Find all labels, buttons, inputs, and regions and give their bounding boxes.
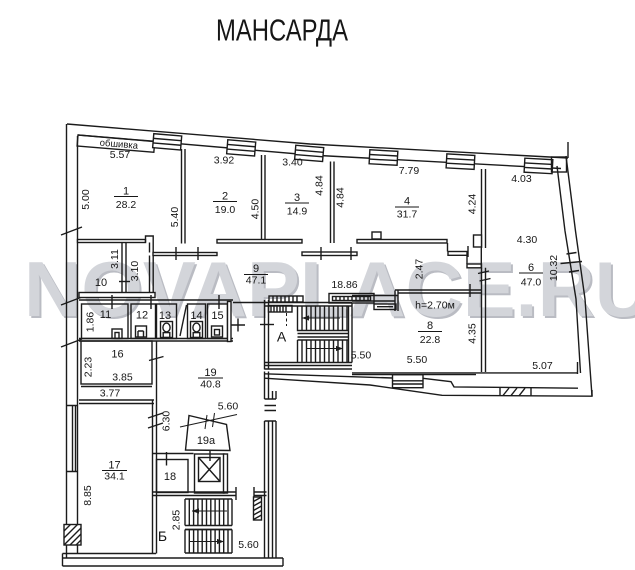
svg-text:6: 6 <box>528 262 534 274</box>
svg-text:14.9: 14.9 <box>287 206 308 218</box>
svg-text:19: 19 <box>204 367 216 379</box>
svg-text:2.23: 2.23 <box>83 357 95 378</box>
svg-text:13: 13 <box>159 310 171 322</box>
svg-text:7.79: 7.79 <box>399 165 420 177</box>
svg-text:9: 9 <box>253 263 259 275</box>
svg-text:МАНСАРДА: МАНСАРДА <box>216 14 349 48</box>
svg-text:8: 8 <box>427 320 433 332</box>
svg-text:19.0: 19.0 <box>215 204 236 216</box>
svg-text:28.2: 28.2 <box>116 199 137 211</box>
svg-text:5.50: 5.50 <box>407 354 428 366</box>
svg-text:4.24: 4.24 <box>467 194 479 215</box>
svg-text:А: А <box>277 329 287 345</box>
svg-text:3: 3 <box>294 192 300 204</box>
svg-text:4.30: 4.30 <box>517 234 538 246</box>
svg-text:22.8: 22.8 <box>420 334 441 346</box>
svg-text:1.86: 1.86 <box>85 312 97 333</box>
svg-text:40.8: 40.8 <box>200 379 221 391</box>
svg-text:6.30: 6.30 <box>161 411 173 432</box>
svg-text:3.92: 3.92 <box>214 155 235 167</box>
svg-text:3.40: 3.40 <box>282 157 303 169</box>
svg-text:Б: Б <box>158 528 167 544</box>
svg-text:34.1: 34.1 <box>104 471 125 483</box>
svg-text:5.50: 5.50 <box>351 350 372 362</box>
svg-text:2: 2 <box>222 191 228 203</box>
svg-text:47.1: 47.1 <box>246 275 267 287</box>
svg-text:15: 15 <box>211 310 223 322</box>
svg-text:4.50: 4.50 <box>250 199 262 220</box>
svg-text:2.47: 2.47 <box>414 259 426 280</box>
svg-text:5.07: 5.07 <box>532 360 553 372</box>
svg-text:10.32: 10.32 <box>548 255 560 281</box>
svg-text:4: 4 <box>404 196 410 208</box>
svg-text:31.7: 31.7 <box>397 209 418 221</box>
svg-text:4.35: 4.35 <box>467 323 479 344</box>
svg-text:4.84: 4.84 <box>335 187 347 208</box>
svg-text:h=2.70м: h=2.70м <box>415 300 455 312</box>
svg-text:14: 14 <box>190 310 202 322</box>
svg-text:4.84: 4.84 <box>314 175 326 196</box>
svg-text:5.00: 5.00 <box>80 189 92 210</box>
svg-text:3.77: 3.77 <box>100 388 121 400</box>
svg-text:5.57: 5.57 <box>110 149 131 161</box>
svg-text:19а: 19а <box>197 435 216 447</box>
svg-text:10: 10 <box>95 277 107 289</box>
svg-text:3.11: 3.11 <box>109 249 121 269</box>
svg-text:12: 12 <box>136 310 148 322</box>
svg-text:16: 16 <box>111 349 123 361</box>
svg-text:11: 11 <box>100 309 111 321</box>
svg-text:5.60: 5.60 <box>238 539 259 551</box>
svg-text:4.03: 4.03 <box>511 173 532 185</box>
svg-text:47.0: 47.0 <box>521 277 542 289</box>
svg-text:1: 1 <box>123 186 129 198</box>
svg-text:3.10: 3.10 <box>129 261 141 282</box>
svg-text:18: 18 <box>164 471 176 483</box>
svg-text:18.86: 18.86 <box>331 279 357 291</box>
svg-text:5.40: 5.40 <box>169 207 181 228</box>
svg-text:8.85: 8.85 <box>82 485 94 506</box>
svg-text:2.85: 2.85 <box>171 510 183 531</box>
svg-text:5.60: 5.60 <box>218 401 239 413</box>
svg-text:3.85: 3.85 <box>112 372 133 384</box>
